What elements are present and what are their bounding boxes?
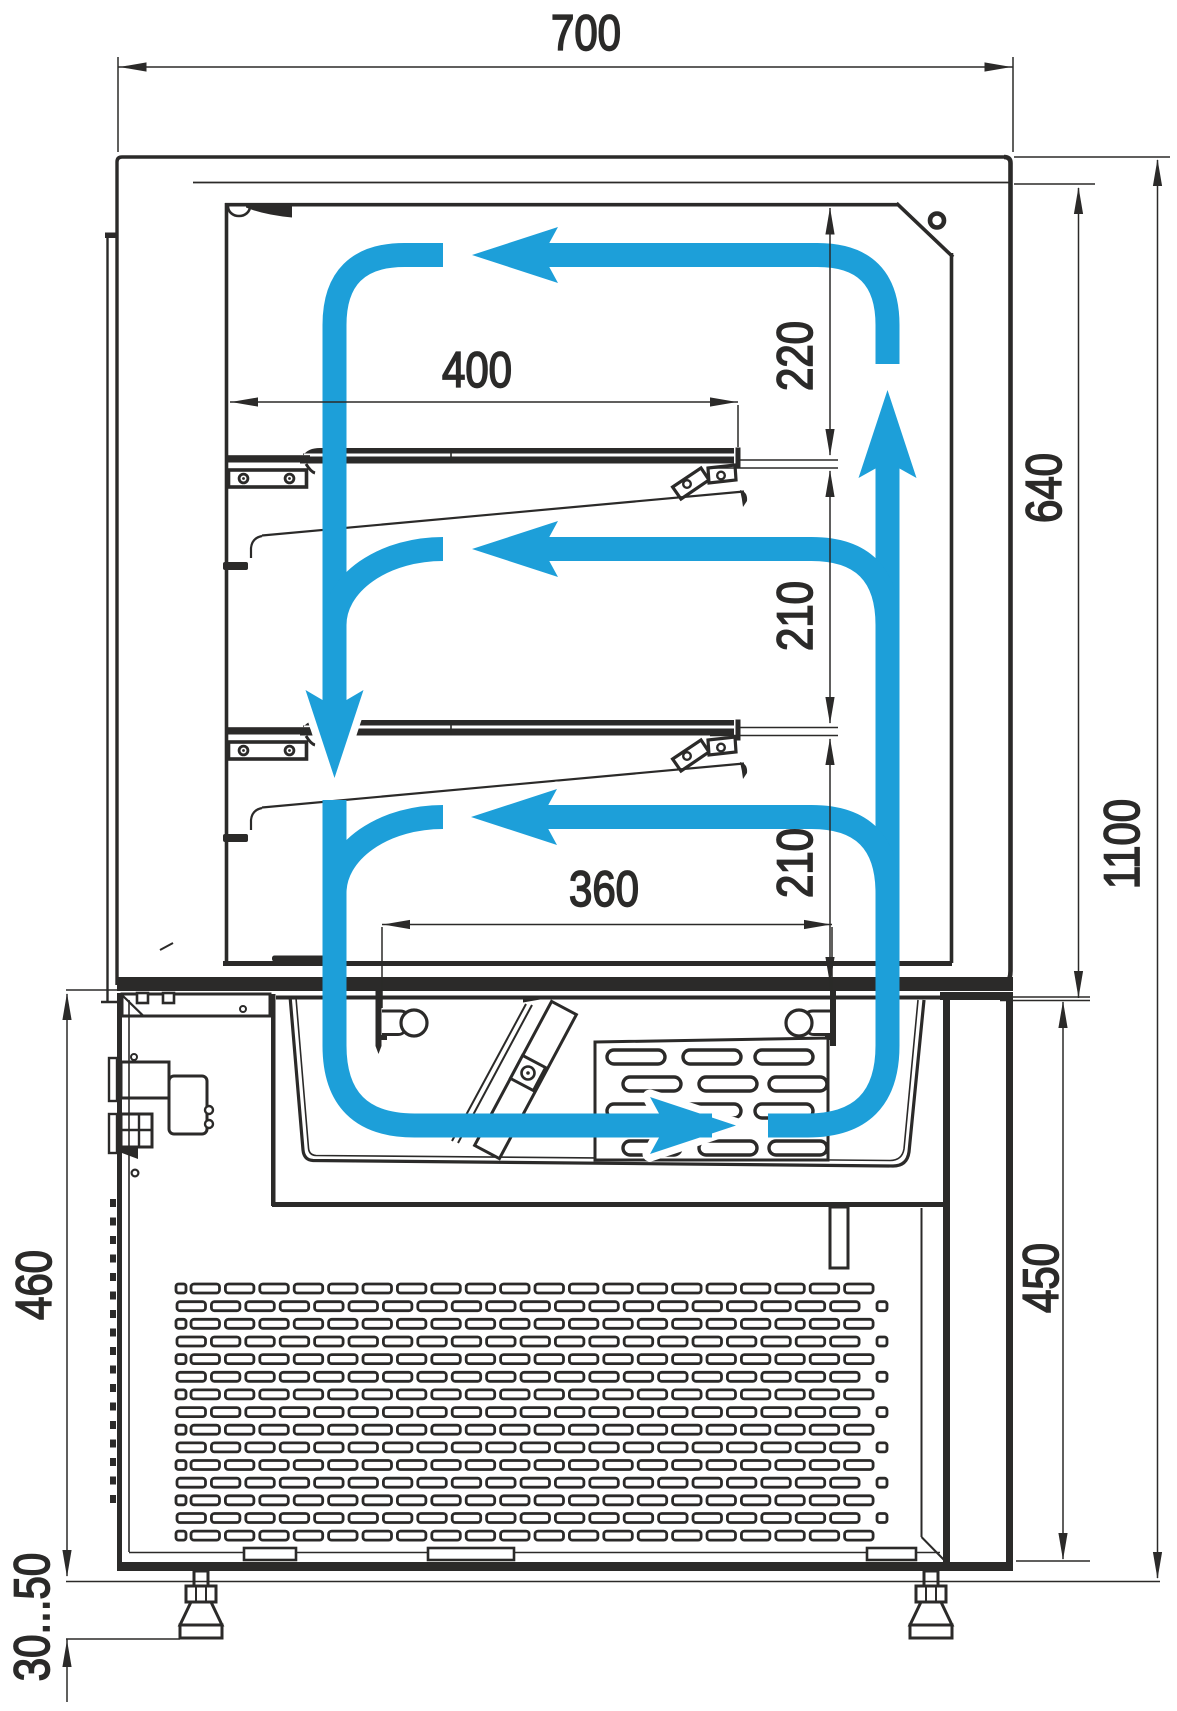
svg-text:220: 220 [767, 321, 823, 391]
svg-text:210: 210 [767, 581, 823, 651]
svg-text:460: 460 [6, 1250, 62, 1320]
svg-text:450: 450 [1013, 1243, 1069, 1313]
svg-text:360: 360 [569, 861, 639, 917]
svg-text:210: 210 [767, 828, 823, 898]
svg-text:1100: 1100 [1094, 799, 1150, 889]
svg-text:30...50: 30...50 [4, 1553, 60, 1681]
svg-text:400: 400 [442, 342, 512, 398]
svg-text:700: 700 [551, 5, 621, 61]
svg-text:640: 640 [1016, 453, 1072, 523]
